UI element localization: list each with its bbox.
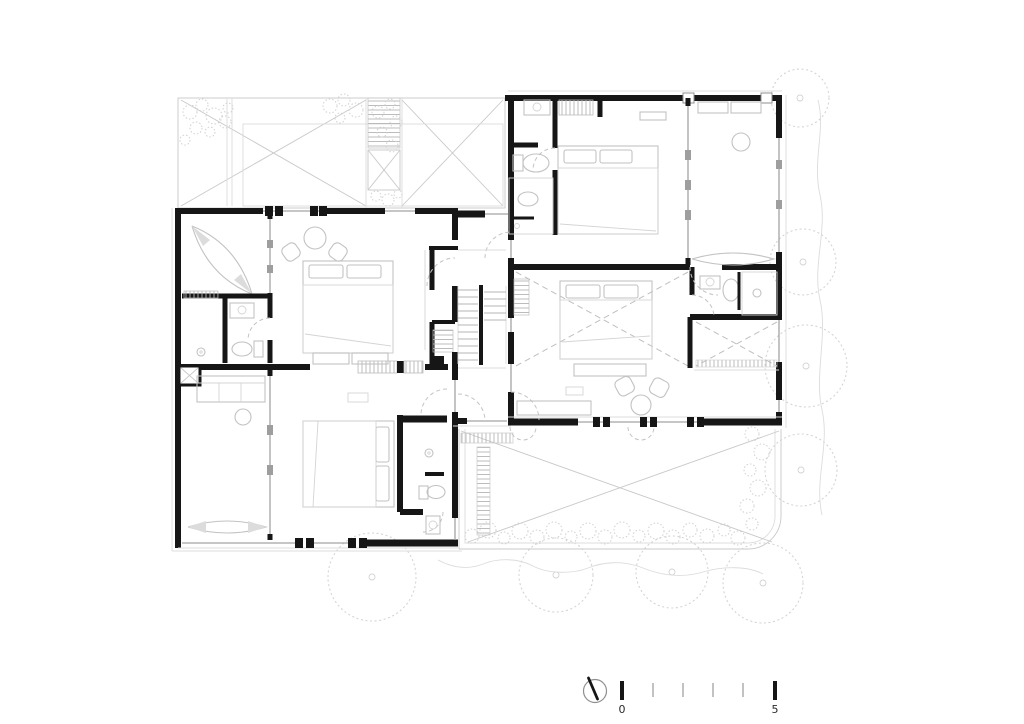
- tree-icon: [723, 543, 803, 623]
- legend: 0 5: [584, 678, 779, 716]
- terrain-line: [817, 100, 824, 515]
- closet-hatch: [358, 361, 397, 373]
- toilet: [723, 279, 739, 301]
- shelf-hatch: [514, 279, 529, 315]
- terrace-shelf: [698, 102, 761, 113]
- planter-x-box: [368, 150, 400, 190]
- scale-start-label: 0: [619, 703, 626, 716]
- terrace-table: [732, 133, 750, 151]
- bed: [558, 146, 658, 234]
- terrace-table: [235, 409, 251, 425]
- garden-shrub-row: [465, 522, 745, 545]
- sink: [524, 100, 550, 115]
- bed: [303, 421, 394, 507]
- floor-plan-canvas: 0 5: [0, 0, 1024, 724]
- suite-center-right: [508, 267, 782, 427]
- scale-minor-tick: [712, 683, 714, 697]
- closet-hatch: [559, 100, 593, 115]
- suite-middle-left: [175, 206, 458, 548]
- hammock: [192, 226, 252, 294]
- closet-hatch: [404, 361, 423, 373]
- tree-icon: [636, 536, 708, 608]
- bed: [560, 281, 652, 376]
- garden-terrace: [459, 427, 781, 549]
- window-shelf-hatch: [184, 291, 218, 298]
- north-arrow-icon: [584, 678, 607, 703]
- roof-terrace-upper-left: [178, 94, 505, 208]
- lounge-chairs: [280, 227, 349, 263]
- garden-step-hatch: [477, 447, 490, 535]
- scale-minor-tick: [682, 683, 684, 697]
- terrain-line: [438, 560, 763, 576]
- central-hall: [427, 211, 511, 426]
- cabinet: [517, 401, 591, 415]
- suite-bottom-left: [178, 367, 458, 548]
- lounge-chairs: [613, 375, 671, 415]
- shower: [742, 272, 777, 315]
- scale-bar: 0 5: [619, 681, 779, 716]
- sink: [230, 303, 254, 318]
- shelf-hatch: [433, 330, 453, 352]
- bidet: [518, 192, 538, 206]
- walk-in-closet: [694, 322, 779, 370]
- bed: [303, 261, 393, 364]
- garden-step-hatch: [461, 433, 513, 443]
- skylight-post: [761, 93, 772, 103]
- scale-major-tick: [773, 681, 777, 700]
- suite-top-right: [485, 93, 782, 270]
- tree-icon: [765, 434, 837, 506]
- daybed: [692, 253, 774, 265]
- staircase: [458, 285, 506, 365]
- scale-end-label: 5: [772, 703, 779, 716]
- vegetation-cluster: [180, 99, 233, 145]
- toilet: [419, 486, 445, 500]
- hammock: [188, 521, 266, 533]
- scale-major-tick: [620, 681, 624, 700]
- toilet: [232, 341, 263, 357]
- toilet: [513, 154, 549, 172]
- floor-plan-page: 0 5: [0, 0, 1024, 724]
- shower: [425, 449, 433, 457]
- shower: [197, 348, 205, 356]
- garden-shrub-edge: [740, 427, 770, 530]
- sofa: [197, 376, 265, 402]
- sink: [700, 276, 720, 289]
- scale-minor-tick: [742, 683, 744, 697]
- scale-minor-tick: [652, 683, 654, 697]
